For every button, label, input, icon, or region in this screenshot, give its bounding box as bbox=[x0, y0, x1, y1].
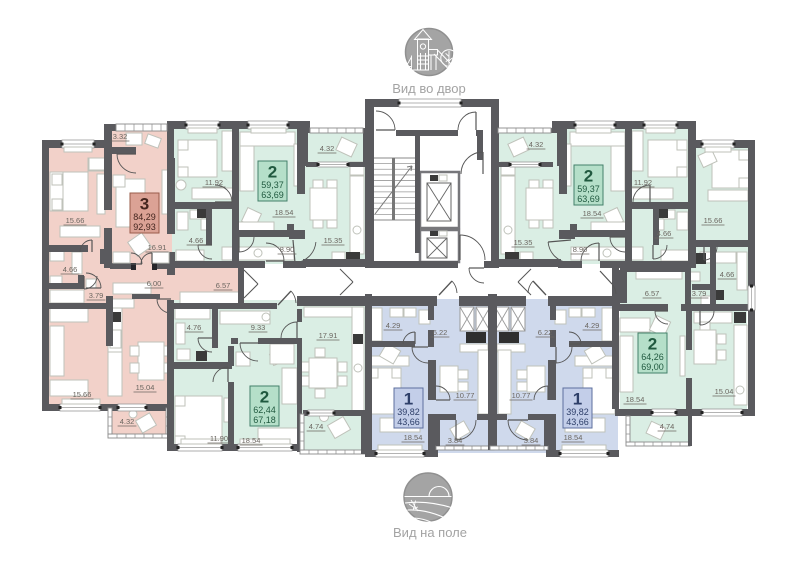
svg-text:15.35: 15.35 bbox=[514, 238, 533, 247]
svg-text:2: 2 bbox=[584, 167, 593, 186]
svg-text:2: 2 bbox=[260, 388, 269, 407]
svg-text:3: 3 bbox=[140, 195, 149, 214]
svg-text:3.84: 3.84 bbox=[524, 436, 539, 445]
svg-text:2: 2 bbox=[268, 163, 277, 182]
svg-text:4.66: 4.66 bbox=[720, 270, 735, 279]
svg-text:67,18: 67,18 bbox=[253, 415, 276, 425]
svg-text:3.79: 3.79 bbox=[89, 291, 104, 300]
svg-text:1: 1 bbox=[404, 390, 413, 409]
svg-text:18.54: 18.54 bbox=[242, 436, 261, 445]
svg-text:3.79: 3.79 bbox=[692, 289, 707, 298]
svg-text:6.22: 6.22 bbox=[433, 328, 448, 337]
svg-text:4.76: 4.76 bbox=[187, 323, 202, 332]
svg-text:15.04: 15.04 bbox=[136, 383, 155, 392]
svg-text:18.54: 18.54 bbox=[583, 209, 602, 218]
svg-text:84,29: 84,29 bbox=[133, 212, 156, 222]
svg-text:15.66: 15.66 bbox=[73, 390, 92, 399]
svg-text:4.66: 4.66 bbox=[189, 236, 204, 245]
svg-text:4.32: 4.32 bbox=[529, 140, 544, 149]
svg-text:15.35: 15.35 bbox=[324, 236, 343, 245]
svg-text:11.92: 11.92 bbox=[634, 178, 652, 187]
svg-text:3.84: 3.84 bbox=[448, 436, 463, 445]
svg-text:2: 2 bbox=[648, 335, 657, 354]
svg-text:4.74: 4.74 bbox=[309, 422, 324, 431]
svg-text:Вид на поле: Вид на поле bbox=[393, 525, 467, 540]
svg-text:10.77: 10.77 bbox=[456, 391, 475, 400]
svg-text:4.66: 4.66 bbox=[657, 229, 672, 238]
svg-text:4.29: 4.29 bbox=[386, 321, 401, 330]
svg-text:4.74: 4.74 bbox=[660, 422, 675, 431]
svg-text:63,69: 63,69 bbox=[261, 190, 284, 200]
svg-text:15.66: 15.66 bbox=[704, 216, 723, 225]
svg-text:3.32: 3.32 bbox=[113, 132, 128, 141]
svg-text:10.77: 10.77 bbox=[512, 391, 531, 400]
svg-text:6.57: 6.57 bbox=[645, 289, 660, 298]
svg-text:43,66: 43,66 bbox=[397, 417, 420, 427]
svg-text:59,37: 59,37 bbox=[577, 184, 600, 194]
svg-text:18.54: 18.54 bbox=[404, 433, 423, 442]
svg-text:9.33: 9.33 bbox=[251, 323, 266, 332]
svg-text:16.91: 16.91 bbox=[148, 243, 167, 252]
svg-text:15.04: 15.04 bbox=[715, 387, 734, 396]
svg-text:6.00: 6.00 bbox=[147, 279, 162, 288]
svg-text:11.90: 11.90 bbox=[210, 434, 228, 443]
svg-text:18.54: 18.54 bbox=[275, 208, 294, 217]
svg-text:6.57: 6.57 bbox=[216, 281, 231, 290]
svg-text:8.90: 8.90 bbox=[573, 245, 588, 254]
svg-text:43,66: 43,66 bbox=[566, 417, 589, 427]
svg-text:8.90: 8.90 bbox=[280, 245, 295, 254]
svg-text:1: 1 bbox=[573, 390, 582, 409]
svg-text:17.91: 17.91 bbox=[319, 331, 338, 340]
svg-text:64,26: 64,26 bbox=[641, 352, 664, 362]
svg-text:15.66: 15.66 bbox=[66, 216, 85, 225]
svg-text:4.66: 4.66 bbox=[63, 265, 78, 274]
svg-text:59,37: 59,37 bbox=[261, 180, 284, 190]
svg-text:4.32: 4.32 bbox=[120, 417, 135, 426]
svg-text:18.54: 18.54 bbox=[564, 433, 583, 442]
svg-text:39,82: 39,82 bbox=[397, 407, 420, 417]
svg-text:62,44: 62,44 bbox=[253, 405, 276, 415]
svg-text:11.92: 11.92 bbox=[205, 178, 223, 187]
svg-text:63,69: 63,69 bbox=[577, 194, 600, 204]
svg-text:4.32: 4.32 bbox=[320, 144, 335, 153]
svg-text:18.54: 18.54 bbox=[626, 395, 645, 404]
svg-text:69,00: 69,00 bbox=[641, 362, 664, 372]
svg-text:39,82: 39,82 bbox=[566, 407, 589, 417]
svg-text:6.22: 6.22 bbox=[538, 328, 553, 337]
svg-text:Вид во двор: Вид во двор bbox=[392, 81, 466, 96]
svg-text:4.29: 4.29 bbox=[585, 321, 600, 330]
svg-text:92,93: 92,93 bbox=[133, 222, 156, 232]
